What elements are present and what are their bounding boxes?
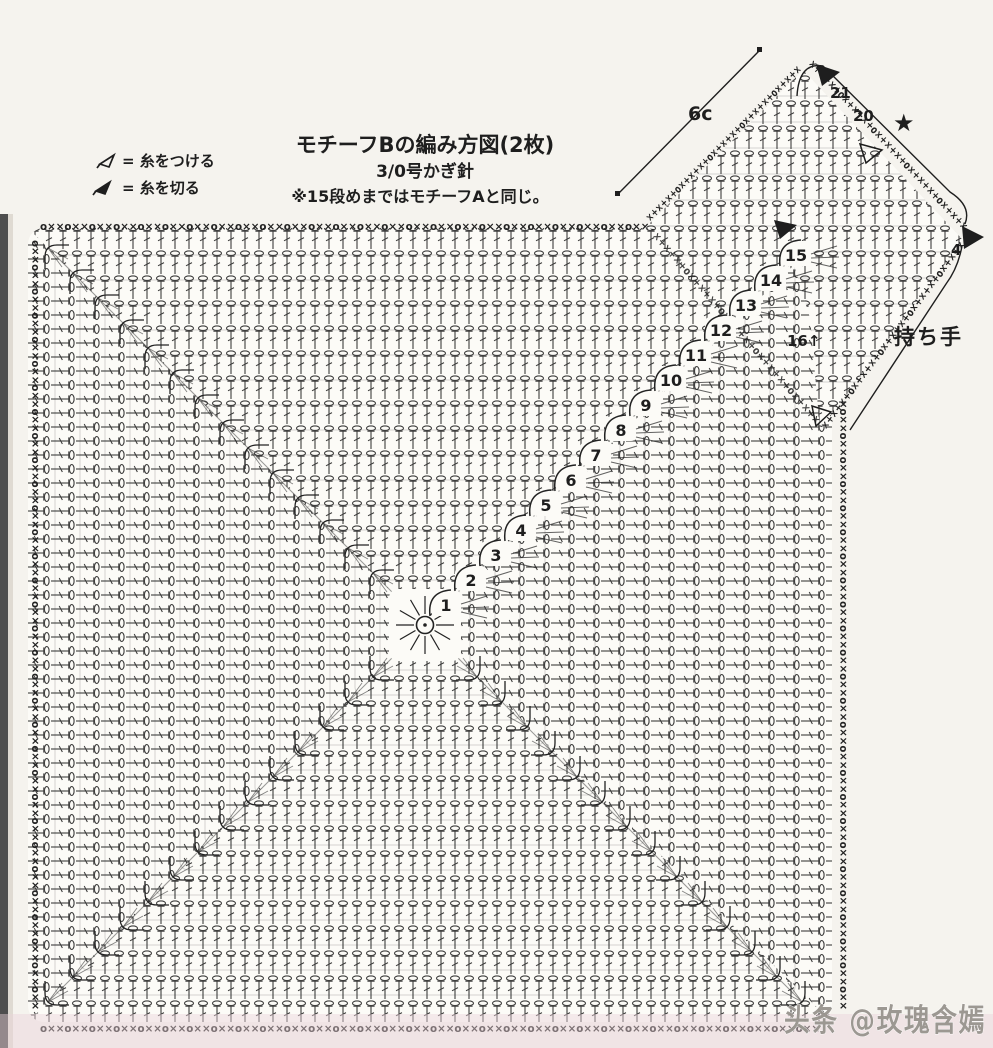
- round-number: 15: [785, 246, 807, 265]
- scanned-crochet-pattern-page: モチーフBの編み方図(2枚) 3/0号かぎ針 ※15段めまではモチーフAと同じ。…: [0, 0, 993, 1048]
- edge-count-label: 4: [951, 241, 961, 259]
- measurement-label: 6c: [688, 103, 712, 125]
- pattern-note: ※15段めまではモチーフAと同じ。: [291, 187, 548, 206]
- round-number: 12: [710, 321, 732, 340]
- round-number: 14: [760, 271, 782, 290]
- edge-round-label: 16↑: [787, 332, 820, 350]
- row-21-label: 21: [830, 84, 851, 102]
- watermark: 头条 @玫瑰含嫣: [784, 1003, 986, 1039]
- round-number: 7: [590, 446, 601, 465]
- round-number: 5: [540, 496, 551, 515]
- round-number: 1: [440, 596, 451, 615]
- cut-thread-label: = 糸を切る: [122, 179, 200, 197]
- round-number: 9: [640, 396, 651, 415]
- motif-square-chart: o××o××o××o××o××o××o××o××o××o××o××o××o××o…: [28, 220, 850, 1035]
- page-spine-shadow: [0, 214, 8, 1048]
- handle-label: 持ち手: [894, 325, 963, 349]
- round-number: 3: [490, 546, 501, 565]
- round-number: 13: [735, 296, 757, 315]
- round-number: 4: [515, 521, 526, 540]
- round-number: 10: [660, 371, 682, 390]
- round-number: 2: [465, 571, 476, 590]
- hook-size: 3/0号かぎ針: [376, 161, 474, 182]
- page-title: モチーフBの編み方図(2枚): [296, 133, 555, 157]
- round-number: 8: [615, 421, 626, 440]
- round-number: 11: [685, 346, 707, 365]
- row-20-label: 20: [853, 107, 874, 125]
- round-number: 6: [565, 471, 576, 490]
- crochet-chart-svg: モチーフBの編み方図(2枚) 3/0号かぎ針 ※15段めまではモチーフAと同じ。…: [0, 0, 993, 1048]
- attach-thread-label: = 糸をつける: [122, 152, 215, 170]
- star-marker: ★: [893, 109, 915, 137]
- svg-text:o××o××o××o××o××o××o××o××o××o××: o××o××o××o××o××o××o××o××o××o××o××o××o××o…: [29, 240, 42, 1010]
